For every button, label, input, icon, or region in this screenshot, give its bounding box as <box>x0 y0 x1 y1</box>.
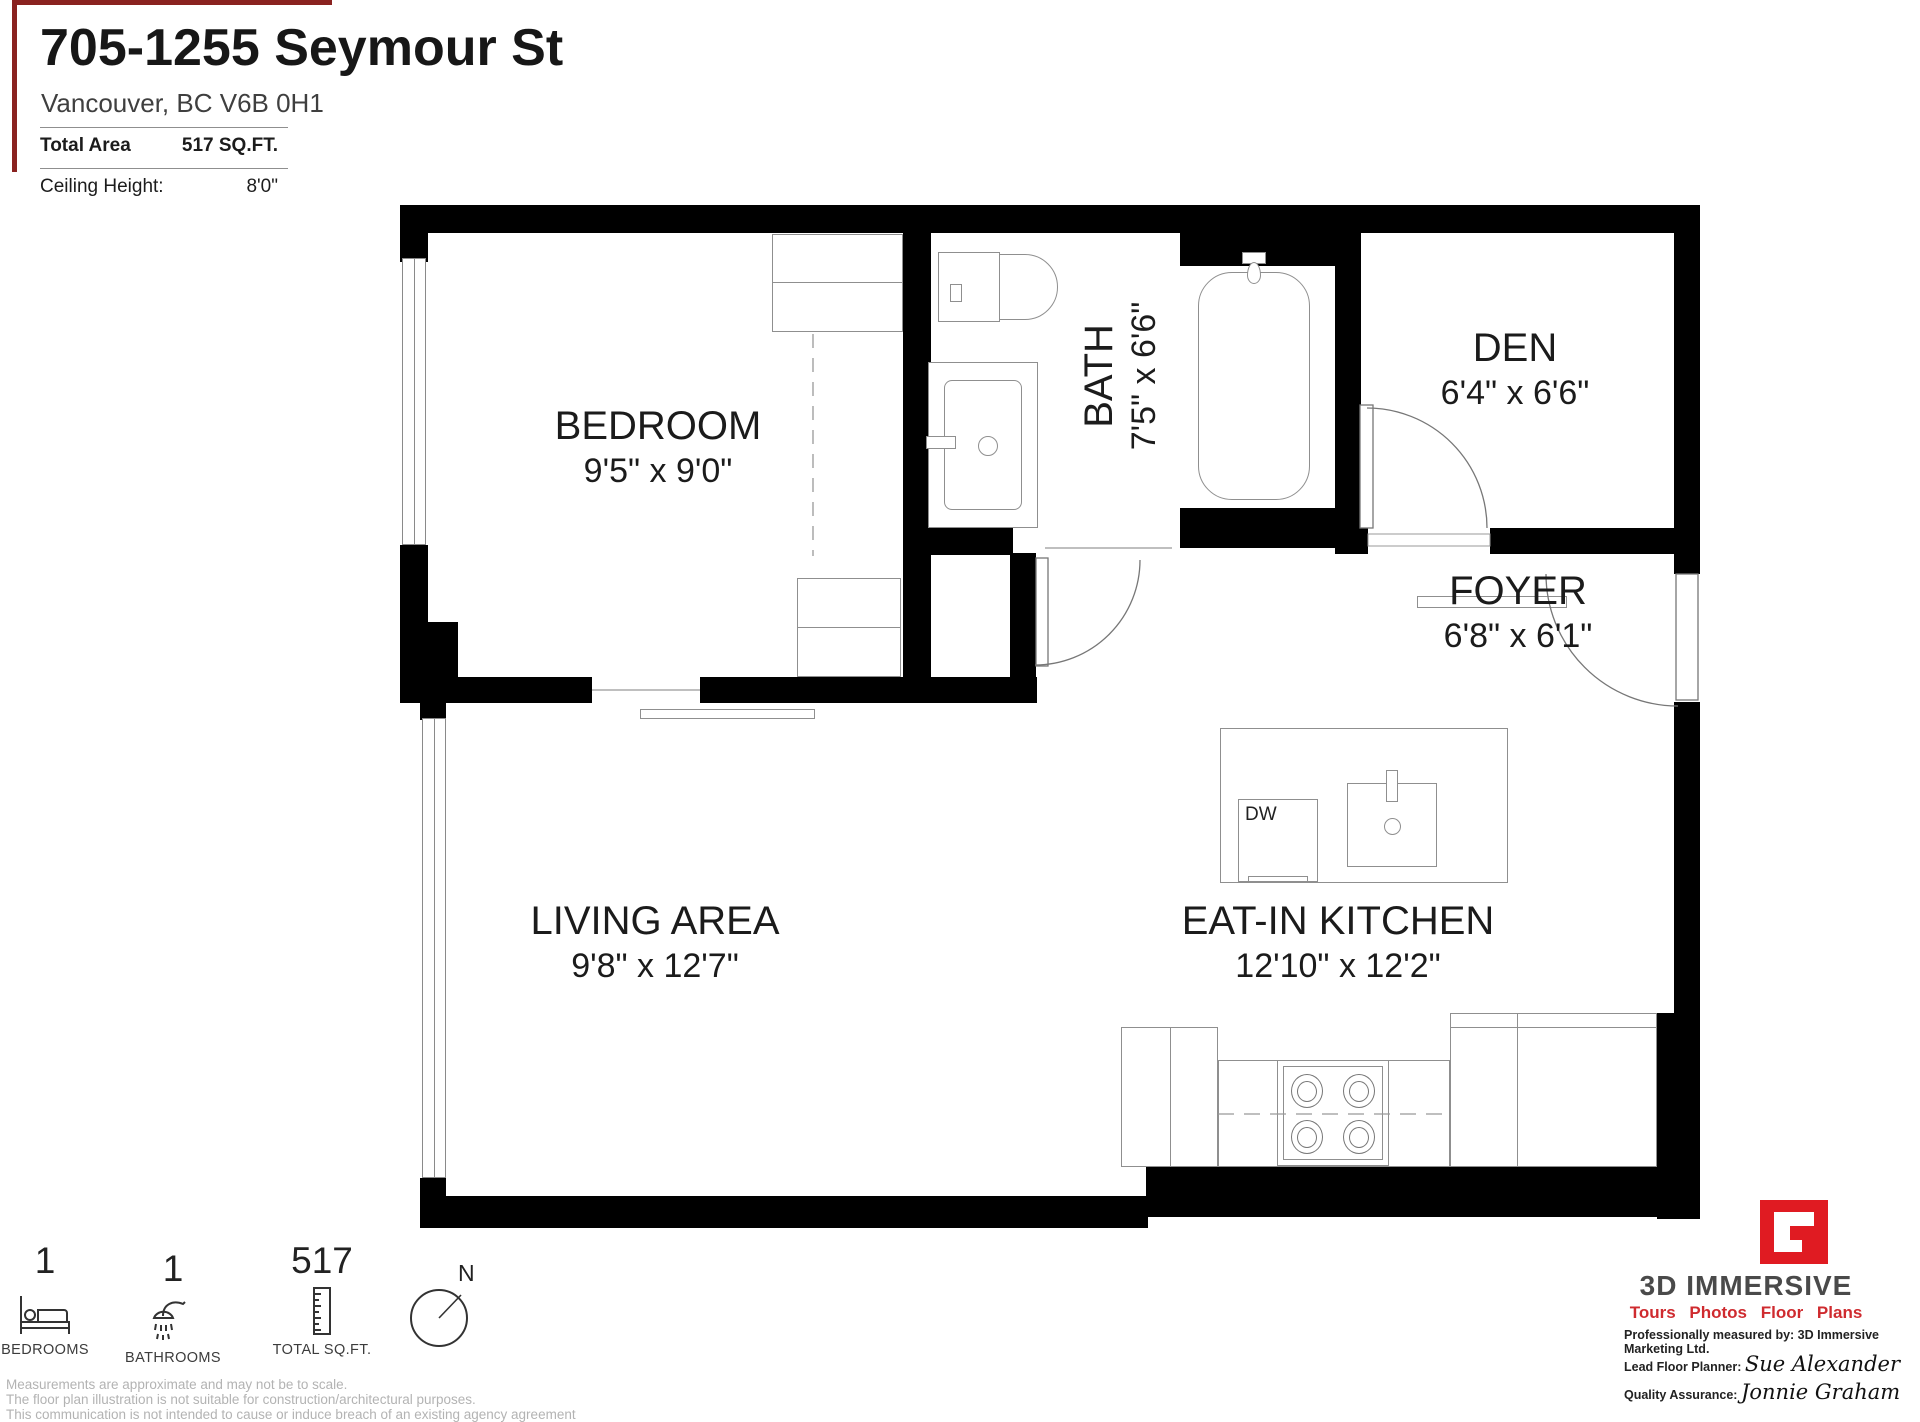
room-label-living: LIVING AREA 9'8" x 12'7" <box>531 898 780 990</box>
divider <box>40 127 288 128</box>
toilet-tank <box>938 252 1000 322</box>
toilet-bowl <box>999 254 1058 320</box>
room-label-den: DEN 6'4" x 6'6" <box>1441 325 1590 417</box>
wall-top <box>400 205 1700 233</box>
bath-door-arc <box>1035 560 1140 665</box>
wall-right-lower <box>1674 702 1700 1013</box>
ceiling-height-value: 8'0" <box>246 176 278 198</box>
total-area-value: 517 SQ.FT. <box>182 135 278 157</box>
bath-faucet <box>926 436 956 449</box>
closet-cabinet-line <box>797 627 901 628</box>
fridge-divider <box>1517 1013 1518 1167</box>
compass-circle <box>411 1290 467 1346</box>
wall-right-corner <box>1657 1013 1700 1219</box>
planner-row: Lead Floor Planner: Sue Alexander <box>1624 1352 1900 1376</box>
burner <box>1297 1127 1317 1148</box>
room-label-bath: BATH 7'5" x 6'6" <box>1076 246 1168 506</box>
ceiling-height-row: Ceiling Height: 8'0" <box>40 176 278 198</box>
wall-right-upper <box>1674 205 1700 574</box>
wall-bath-bottom <box>903 527 1013 555</box>
bath-door-leaf <box>1036 558 1048 666</box>
wall-den-bottom <box>1335 528 1368 554</box>
compass-needle <box>439 1295 461 1318</box>
ruler-icon <box>257 1290 387 1336</box>
toilet-flush-button <box>950 284 962 302</box>
company-logo-icon <box>1760 1200 1828 1269</box>
qa-signature: Jonnie Graham <box>1741 1380 1900 1404</box>
total-area-label: Total Area <box>40 135 131 157</box>
fridge <box>1450 1013 1657 1167</box>
room-label-bedroom: BEDROOM 9'5" x 9'0" <box>555 403 762 495</box>
accent-border-horizontal <box>12 0 332 5</box>
island-sink-drain <box>1384 818 1401 835</box>
bed-icon <box>0 1290 110 1336</box>
bathtub <box>1198 272 1310 500</box>
window-living <box>422 718 446 1178</box>
cabinet-divider <box>1170 1027 1171 1167</box>
room-label-kitchen: EAT-IN KITCHEN 12'10" x 12'2" <box>1182 898 1495 990</box>
window-bedroom <box>402 258 426 545</box>
wall-hall-bottom <box>700 677 1037 703</box>
tub-spout <box>1247 262 1261 284</box>
stat-bathrooms: 1 BATHROOMS <box>108 1240 238 1366</box>
fridge-line <box>1450 1027 1657 1028</box>
stat-sqft: 517 TOTAL SQ.FT. <box>257 1240 387 1358</box>
burner <box>1349 1081 1369 1102</box>
room-label-foyer: FOYER 6'8" x 6'1" <box>1444 568 1593 660</box>
island-faucet <box>1386 770 1398 802</box>
wall <box>420 698 446 720</box>
page-title: 705-1255 Seymour St <box>40 18 563 78</box>
total-area-row: Total Area 517 SQ.FT. <box>40 135 278 157</box>
burner <box>1349 1127 1369 1148</box>
wall <box>428 622 458 680</box>
floor-transition <box>640 709 815 719</box>
floor-plan-page: 705-1255 Seymour St Vancouver, BC V6B 0H… <box>0 0 1920 1422</box>
compass-north-label: N <box>458 1260 475 1287</box>
wall-tub-alcove-bottom <box>1180 508 1335 548</box>
qa-row: Quality Assurance: Jonnie Graham <box>1624 1380 1900 1404</box>
company-name: 3D IMMERSIVE <box>1608 1270 1884 1302</box>
shower-icon <box>108 1298 238 1344</box>
wall-bedroom-bath <box>903 232 931 680</box>
entry-door-leaf <box>1676 574 1698 700</box>
closet-shelf <box>772 234 903 283</box>
address: Vancouver, BC V6B 0H1 <box>41 88 324 119</box>
disclaimer: Measurements are approximate and may not… <box>6 1377 576 1422</box>
sink-drain <box>978 436 998 456</box>
company-tagline: Tours Photos Floor Plans <box>1608 1303 1884 1323</box>
wall-living-bottom <box>420 1196 1148 1228</box>
wall <box>420 1178 446 1198</box>
burner <box>1297 1081 1317 1102</box>
dishwasher-label: DW <box>1245 804 1277 826</box>
ceiling-height-label: Ceiling Height: <box>40 176 164 198</box>
planner-signature: Sue Alexander <box>1745 1352 1900 1376</box>
accent-border-vertical <box>12 0 17 172</box>
stat-bedrooms: 1 BEDROOMS <box>0 1240 110 1358</box>
dishwasher-handle <box>1248 876 1308 882</box>
den-door-arc <box>1367 408 1487 528</box>
wall <box>400 545 428 680</box>
wall-den-bottom <box>1490 528 1674 554</box>
den-door-leaf <box>1360 405 1373 528</box>
wall <box>400 205 428 262</box>
closet-shelf <box>772 282 903 332</box>
wall-kitchen-bottom <box>1146 1167 1700 1217</box>
divider <box>40 168 288 169</box>
wall-hall <box>1010 553 1036 680</box>
wall-den-left <box>1335 205 1361 552</box>
